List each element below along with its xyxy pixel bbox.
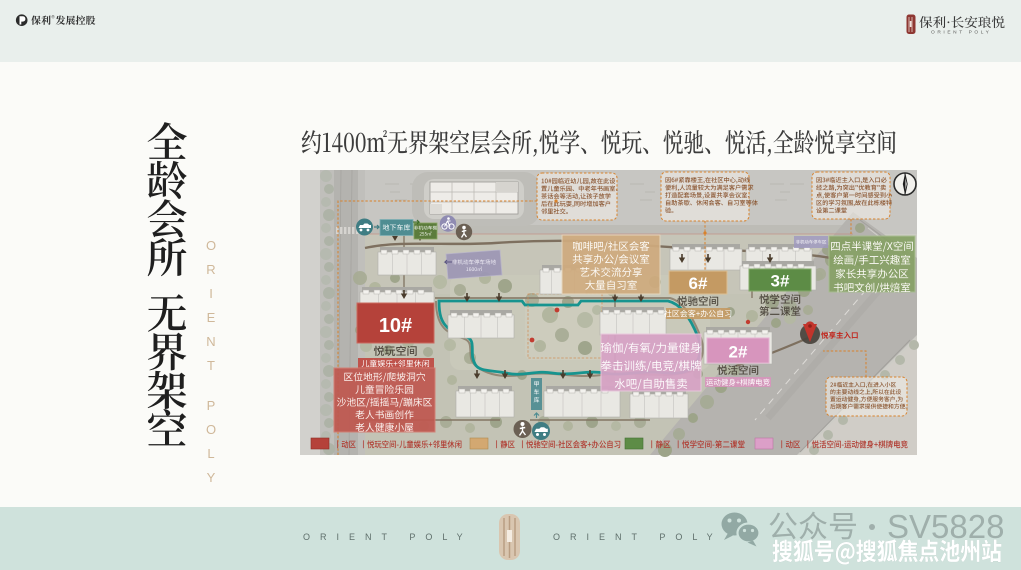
- svg-text:ORIENT POLY: ORIENT POLY: [303, 532, 473, 542]
- svg-text:I: I: [209, 286, 213, 301]
- svg-text:O: O: [206, 422, 216, 437]
- svg-text:P: P: [207, 398, 216, 413]
- svg-text:L: L: [207, 446, 214, 461]
- svg-text:6#: 6#: [689, 274, 708, 293]
- svg-text:Y: Y: [207, 470, 216, 485]
- svg-text:SV5828: SV5828: [887, 508, 1004, 545]
- svg-text:2#: 2#: [729, 343, 748, 362]
- svg-text:ORIENT POLY: ORIENT POLY: [553, 532, 723, 542]
- svg-text:3#: 3#: [771, 272, 790, 291]
- svg-text:R: R: [206, 262, 215, 277]
- svg-text:E: E: [207, 310, 216, 325]
- svg-text:N: N: [206, 334, 215, 349]
- svg-text:ORIENT POLY: ORIENT POLY: [931, 30, 991, 36]
- svg-text:10#: 10#: [379, 315, 412, 337]
- svg-text:T: T: [207, 358, 215, 373]
- svg-text:O: O: [206, 238, 216, 253]
